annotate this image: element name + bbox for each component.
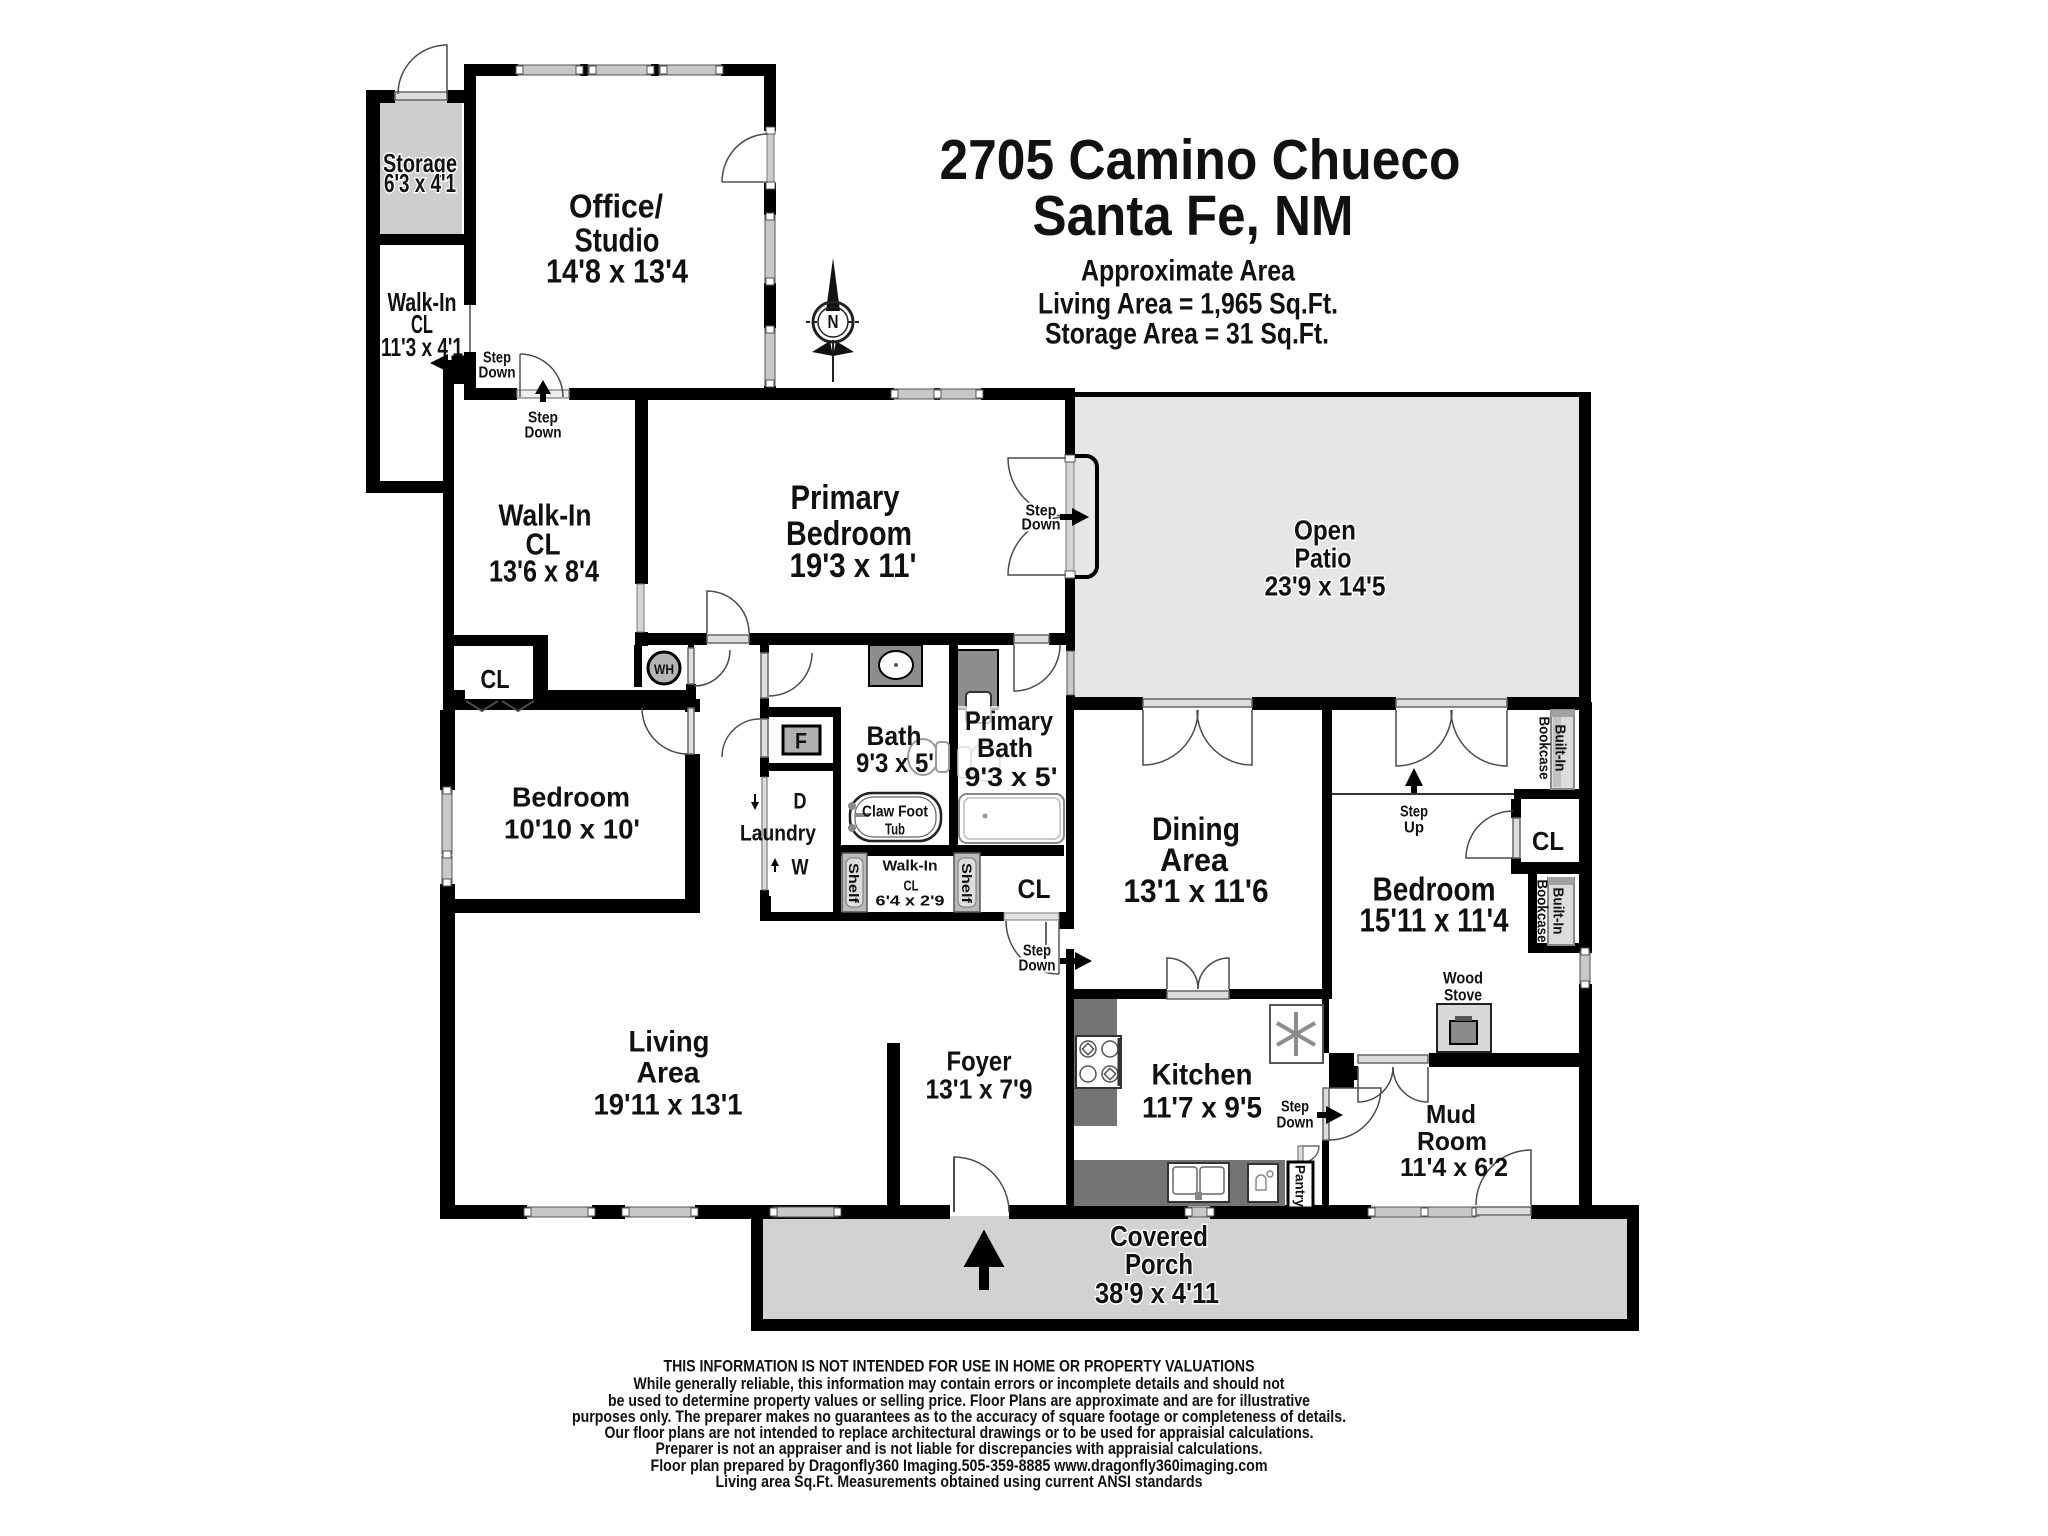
- svg-text:Patio: Patio: [1295, 543, 1352, 574]
- svg-text:Laundry: Laundry: [740, 821, 817, 846]
- svg-text:Living: Living: [629, 1026, 710, 1059]
- svg-text:CL: CL: [1532, 826, 1564, 856]
- svg-text:Down: Down: [1019, 958, 1056, 975]
- svg-text:Step: Step: [1281, 1099, 1309, 1116]
- svg-text:11'3 x 4'1: 11'3 x 4'1: [381, 332, 463, 362]
- svg-text:Storage Area = 31 Sq.Ft.: Storage Area = 31 Sq.Ft.: [1045, 318, 1329, 351]
- svg-text:D: D: [794, 789, 807, 814]
- svg-text:13'6 x 8'4: 13'6 x 8'4: [489, 554, 600, 589]
- svg-text:Step: Step: [1400, 804, 1428, 821]
- svg-text:Shelf: Shelf: [846, 863, 862, 903]
- svg-text:Walk-In: Walk-In: [883, 858, 938, 875]
- svg-text:Area: Area: [637, 1057, 700, 1090]
- svg-text:Porch: Porch: [1125, 1249, 1193, 1281]
- svg-text:Built-In: Built-In: [1552, 725, 1569, 772]
- svg-text:6'3 x 4'1: 6'3 x 4'1: [384, 168, 456, 198]
- svg-text:While generally reliable, this: While generally reliable, this informati…: [634, 1375, 1285, 1393]
- svg-text:CL: CL: [1018, 874, 1051, 904]
- svg-text:Primary: Primary: [791, 479, 900, 517]
- svg-text:Down: Down: [1277, 1115, 1314, 1132]
- svg-text:Bath: Bath: [977, 733, 1033, 763]
- svg-text:Living Area = 1,965 Sq.Ft.: Living Area = 1,965 Sq.Ft.: [1038, 288, 1338, 321]
- svg-text:13'1 x 11'6: 13'1 x 11'6: [1124, 873, 1269, 909]
- svg-text:THIS INFORMATION IS NOT INTEND: THIS INFORMATION IS NOT INTENDED FOR USE…: [664, 1357, 1255, 1376]
- svg-text:Down: Down: [1022, 517, 1061, 534]
- svg-text:9'3 x 5': 9'3 x 5': [965, 762, 1058, 792]
- svg-text:19'11 x 13'1: 19'11 x 13'1: [594, 1089, 743, 1122]
- svg-text:6'4 x 2'9: 6'4 x 2'9: [876, 893, 945, 910]
- svg-text:Shelf: Shelf: [959, 863, 975, 903]
- svg-text:11'4 x 6'2: 11'4 x 6'2: [1400, 1152, 1508, 1182]
- svg-text:Tub: Tub: [885, 822, 905, 839]
- svg-text:Stove: Stove: [1444, 986, 1482, 1005]
- svg-text:Foyer: Foyer: [947, 1046, 1012, 1077]
- svg-text:F: F: [795, 729, 807, 754]
- svg-text:38'9 x 4'11: 38'9 x 4'11: [1095, 1278, 1219, 1310]
- svg-text:11'7 x 9'5: 11'7 x 9'5: [1142, 1092, 1262, 1125]
- svg-text:Preparer is not an appraiser a: Preparer is not an appraiser and is not …: [656, 1440, 1263, 1458]
- svg-text:15'11 x 11'4: 15'11 x 11'4: [1360, 902, 1510, 939]
- svg-text:14'8 x 13'4: 14'8 x 13'4: [546, 253, 689, 290]
- svg-text:Down: Down: [525, 425, 562, 442]
- svg-text:Claw Foot: Claw Foot: [862, 804, 929, 821]
- svg-text:Bookcase: Bookcase: [1536, 717, 1553, 780]
- svg-text:13'1 x 7'9: 13'1 x 7'9: [926, 1074, 1033, 1105]
- svg-text:N: N: [828, 312, 839, 332]
- svg-text:Open: Open: [1294, 515, 1356, 546]
- svg-text:Bedroom: Bedroom: [512, 782, 630, 813]
- svg-text:CL: CL: [481, 664, 510, 694]
- svg-text:23'9 x 14'5: 23'9 x 14'5: [1265, 571, 1386, 602]
- svg-text:Living area Sq.Ft. Measurement: Living area Sq.Ft. Measurements obtained…: [716, 1473, 1203, 1491]
- svg-text:Bath: Bath: [867, 721, 922, 751]
- svg-text:Bookcase: Bookcase: [1534, 880, 1551, 943]
- svg-text:2705 Camino Chueco: 2705 Camino Chueco: [940, 128, 1461, 192]
- svg-text:WH: WH: [654, 661, 674, 677]
- svg-text:Primary: Primary: [965, 706, 1053, 736]
- svg-text:Pantry: Pantry: [1293, 1165, 1308, 1207]
- svg-text:Built-In: Built-In: [1550, 888, 1567, 935]
- svg-text:Down: Down: [479, 365, 516, 382]
- svg-text:Kitchen: Kitchen: [1152, 1059, 1253, 1092]
- svg-text:10'10 x 10': 10'10 x 10': [504, 814, 640, 845]
- svg-text:Approximate Area: Approximate Area: [1081, 255, 1295, 288]
- svg-text:Mud: Mud: [1426, 1099, 1476, 1129]
- svg-text:Up: Up: [1404, 820, 1424, 837]
- svg-text:9'3 x 5': 9'3 x 5': [856, 748, 934, 778]
- svg-text:Santa Fe, NM: Santa Fe, NM: [1033, 184, 1354, 248]
- svg-text:Office/: Office/: [569, 188, 663, 225]
- svg-text:19'3 x 11': 19'3 x 11': [790, 547, 917, 585]
- svg-text:W: W: [792, 855, 809, 880]
